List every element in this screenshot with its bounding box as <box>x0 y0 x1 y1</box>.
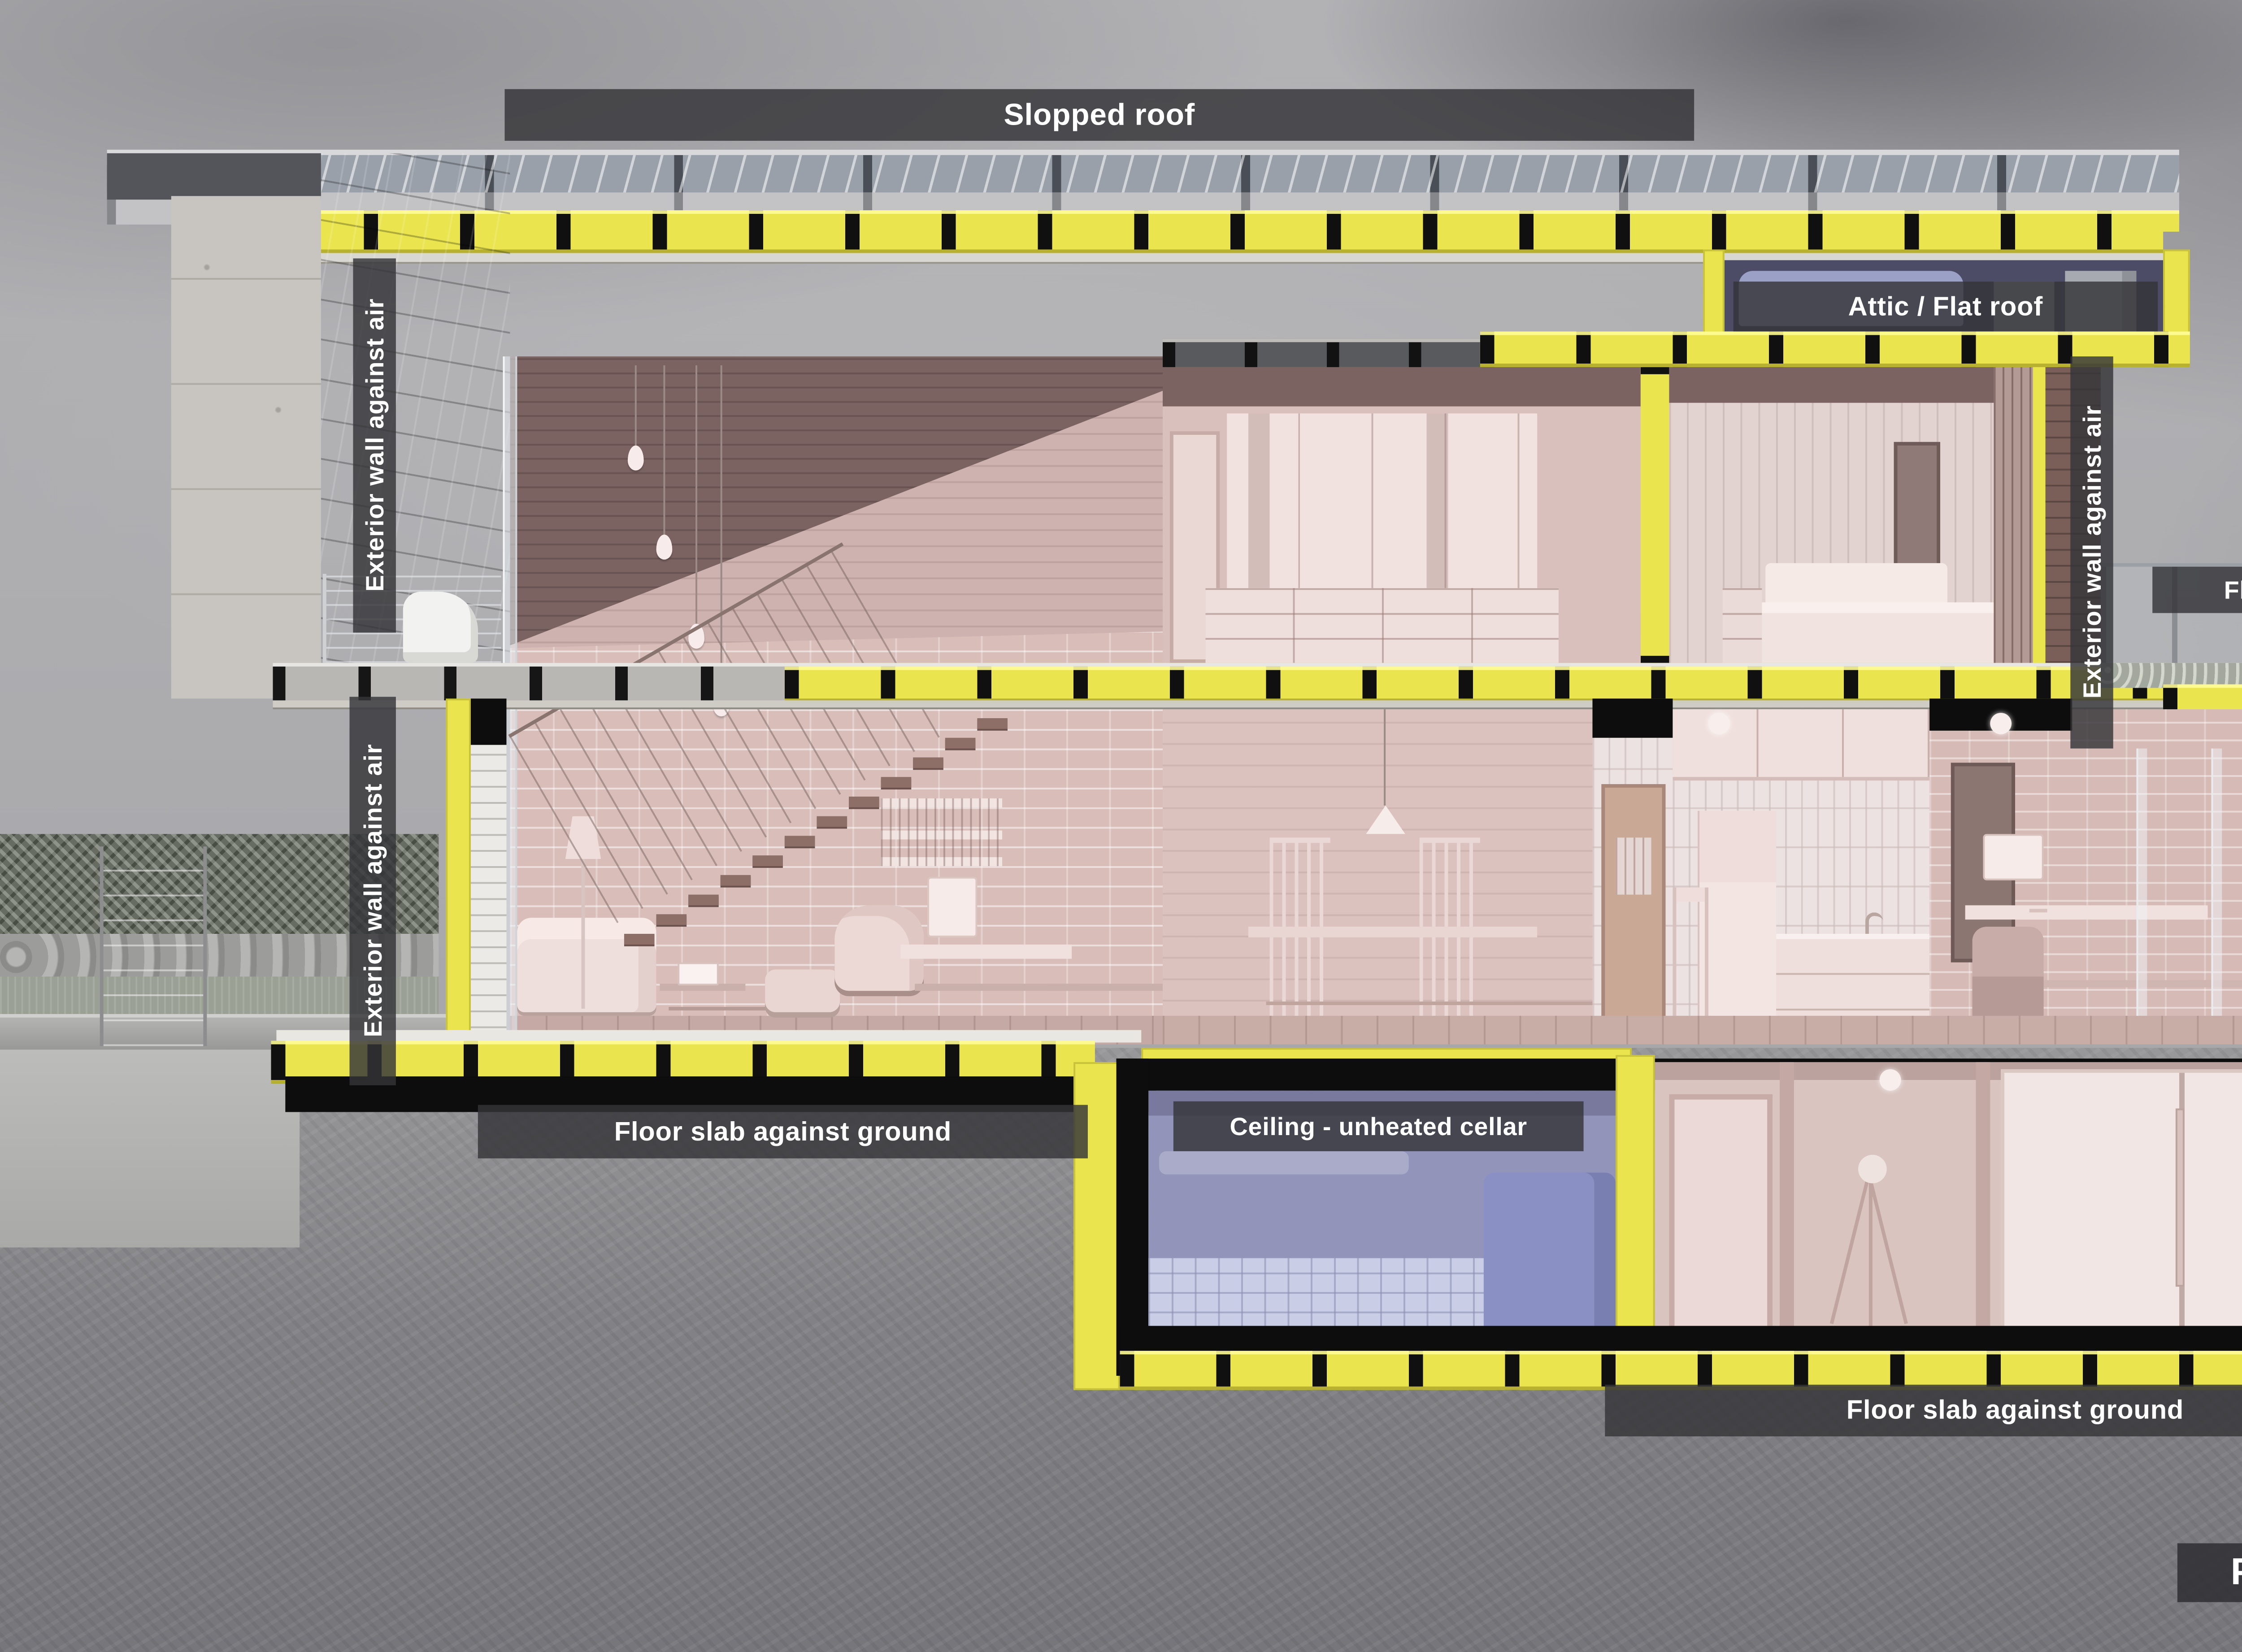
pendant-cord <box>695 365 697 624</box>
cellar-partition <box>1976 1062 1990 1333</box>
label-floor-slab-against-ground: Floor slab against ground <box>1605 1385 2242 1436</box>
left-wire-railing <box>100 846 207 1046</box>
wall-desk <box>900 945 1072 959</box>
door-window <box>1616 837 1651 894</box>
stair-tread <box>721 875 751 886</box>
roof-overhang-left <box>107 153 321 199</box>
stair-tread <box>785 836 815 846</box>
pendant-cord <box>1384 709 1386 806</box>
desktop-monitor <box>927 877 977 937</box>
glass-partition <box>2211 749 2222 1037</box>
cellar-slab-insulation <box>1120 1351 2242 1390</box>
stair-tread <box>752 855 783 866</box>
tall-cabinet <box>1698 811 1776 1045</box>
pendant-cord <box>663 365 665 535</box>
label-slopped-roof: Slopped roof <box>504 89 1694 141</box>
stair-tread <box>881 777 912 788</box>
passive-house-cutaway-diagram: Slopped roof Attic / Flat roof Exterior … <box>0 0 2242 1652</box>
diagram-title: Passive House Components <box>2177 1544 2242 1602</box>
cellar-wardrobe <box>2001 1069 2242 1333</box>
cellar-partition <box>1780 1062 1794 1333</box>
stair-tread <box>913 757 943 768</box>
ceiling-light <box>1990 713 2012 734</box>
storage-chest <box>1484 1173 1616 1333</box>
dining-room <box>1163 709 1592 1044</box>
drawer-unit <box>1205 588 1558 663</box>
label-flat-roof: Flat roof <box>2152 567 2242 613</box>
left-wall-header <box>471 698 507 745</box>
insulated-partition-wall <box>1641 367 1669 663</box>
label-ceiling-unheated-cellar: Ceiling - unheated cellar <box>1173 1101 1584 1151</box>
stair-tread <box>656 914 687 925</box>
ventilation-duct <box>1159 1151 1409 1175</box>
kitchen-wall-header <box>1592 698 1673 737</box>
faucet <box>1865 912 1883 934</box>
label-floor-slab-against-ground: Floor slab against ground <box>478 1105 1088 1158</box>
wall-shelves <box>881 798 1002 866</box>
desktop-computer <box>1983 834 2043 880</box>
ceiling-light <box>1880 1069 1901 1091</box>
tripod-spotlight <box>1858 1155 1887 1184</box>
stair-tread <box>817 816 847 827</box>
stair-tread <box>945 738 976 749</box>
stair-tread <box>849 797 879 807</box>
label-exterior-wall-against-air: Exterior wall against air <box>349 697 395 1085</box>
stair-tread <box>624 934 655 945</box>
stair-tread <box>688 895 719 906</box>
laptop <box>678 963 718 986</box>
ground-floor-boards <box>1163 1016 2242 1045</box>
left-wall-insulation <box>446 698 471 1044</box>
left-brick-pier <box>471 745 507 1045</box>
sofa <box>517 918 656 1012</box>
dining-chair <box>1270 837 1330 1044</box>
pendant-cord <box>635 365 637 446</box>
dining-table <box>1248 927 1537 937</box>
cellar-door <box>1669 1094 1773 1333</box>
left-pavement <box>0 1048 300 1247</box>
ceiling-light <box>1708 713 1730 734</box>
nightstand <box>1723 588 1762 663</box>
bed <box>1762 603 1994 663</box>
attic-floor-slab <box>1163 338 1480 367</box>
office-desk <box>1965 905 2208 919</box>
wardrobe-handle <box>2176 1109 2185 1287</box>
floor-lamp-pole <box>582 855 585 1009</box>
roof-insulation-layer <box>268 210 2179 253</box>
dining-chair <box>1420 837 1480 1044</box>
label-exterior-wall-against-air: Exterior wall against air <box>353 258 395 633</box>
glass-partition <box>2136 749 2147 1037</box>
balcony-deck-slab <box>273 663 784 702</box>
ottoman <box>765 970 840 1012</box>
screenshot-stage: Slopped roof Attic / Flat roof Exterior … <box>0 0 2242 1652</box>
left-concrete-wall <box>171 196 321 698</box>
stair-tread <box>977 718 1008 729</box>
kitchen-door <box>1601 784 1665 1044</box>
label-attic-flat-roof: Attic / Flat roof <box>1734 282 2158 331</box>
floor-slab-insulation <box>785 663 2242 702</box>
label-exterior-wall-against-air: Exterior wall against air <box>2070 356 2113 749</box>
tripod-leg <box>1869 1180 1873 1330</box>
